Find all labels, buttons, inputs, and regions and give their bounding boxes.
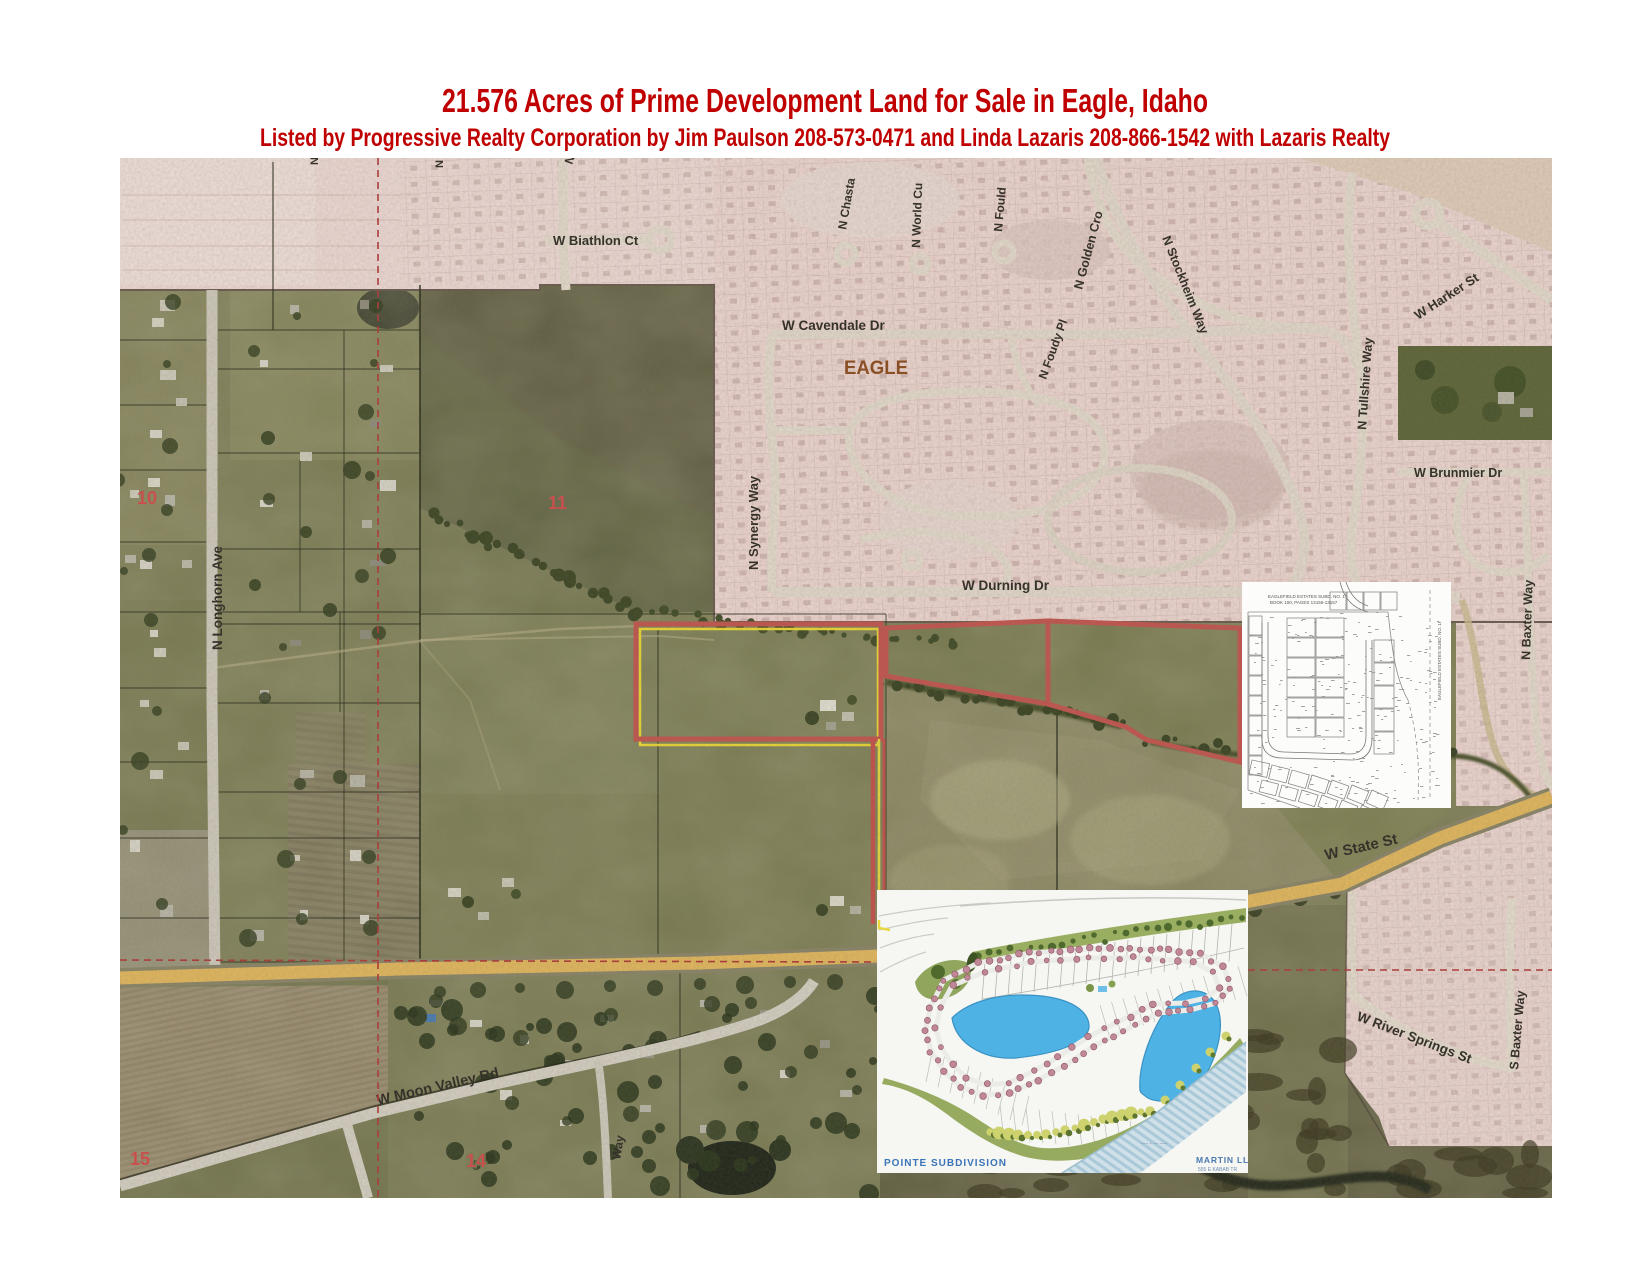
svg-text:21.576 Acres of Prime Developm: 21.576 Acres of Prime Development Land f… <box>442 82 1208 119</box>
svg-text:~~~ ~ ~~ ~~~: ~~~ ~ ~~ ~~~ <box>1140 1141 1168 1146</box>
svg-text:POINTE SUBDIVISION: POINTE SUBDIVISION <box>884 1158 1007 1169</box>
svg-text:555 E KABAB TR: 555 E KABAB TR <box>1198 1167 1237 1173</box>
svg-text:EAGLEFIELD ESTATES SUBD. NO. 1: EAGLEFIELD ESTATES SUBD. NO. 1 <box>1437 623 1442 700</box>
svg-text:EAGLEFIELD ESTATES SUBD. NO. 1: EAGLEFIELD ESTATES SUBD. NO. 1 <box>1268 594 1345 599</box>
svg-text:Listed by Progressive Realty C: Listed by Progressive Realty Corporation… <box>260 124 1390 152</box>
svg-text:BOOK 100, PAGES 13156-13157: BOOK 100, PAGES 13156-13157 <box>1270 600 1338 605</box>
svg-text:MARTIN LLC: MARTIN LLC <box>1196 1155 1256 1165</box>
